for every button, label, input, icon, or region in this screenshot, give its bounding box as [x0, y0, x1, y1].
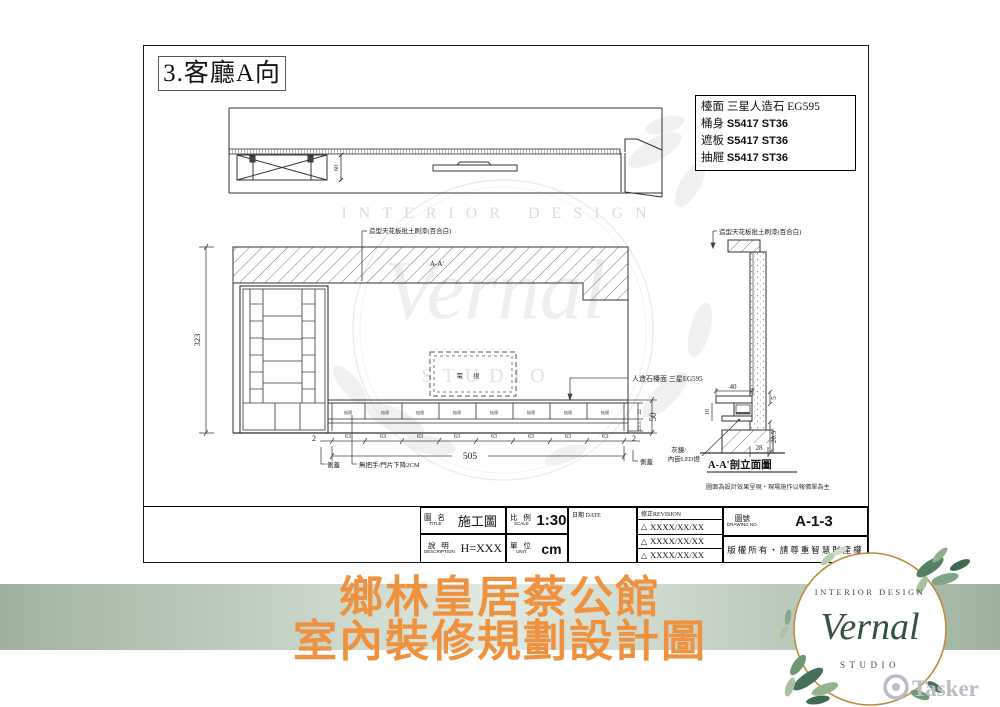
revision-row: △XXXX/XX/XX — [638, 534, 722, 548]
material-label: 遮板 — [701, 135, 724, 147]
side-cover-right-label: 側蓋 — [640, 457, 654, 466]
mirror-note-dot — [738, 419, 741, 422]
materials-box: 檯面 三星人造石 EG595 桶身 S5417 ST36 遮板 S5417 ST… — [695, 95, 856, 171]
section-cut-label: A-A' — [430, 260, 444, 268]
material-value: S5417 ST36 — [727, 152, 788, 164]
tasker-wordmark: Tasker — [912, 676, 979, 701]
segment-dim: 63 — [417, 434, 423, 440]
revision-triangle-icon: △ — [641, 537, 647, 546]
tb-drawingno-value: A-1-3 — [761, 513, 867, 530]
bottom-label-leaders — [321, 415, 638, 464]
page-canvas: INTERIOR DESIGN Vernal STUDIO — [0, 0, 1000, 707]
plan-view — [229, 108, 662, 197]
segment-dim-lines — [320, 438, 640, 444]
tb-date-cell: 日期 DATE — [568, 507, 637, 563]
material-label: 檯面 — [701, 101, 724, 113]
drawer-labels: 抽屜 抽屜 抽屜 抽屜 抽屜 抽屜 抽屜 抽屜 — [344, 409, 609, 416]
view-title-box: 3.客廳A向 — [158, 56, 286, 91]
material-row: 桶身 S5417 ST36 — [701, 116, 850, 133]
elevation-ceiling — [233, 247, 628, 433]
handle-note: 無把手/門片下降2CM — [359, 460, 420, 469]
mirror-note-line2: 內嵌LED燈 — [668, 454, 701, 463]
view-title: 3.客廳A向 — [163, 60, 281, 87]
side-dim-right: 2 — [632, 434, 636, 443]
row-bottom-dim: 23.5 — [637, 421, 643, 431]
tb-revision-cell: 修正REVISION △XXXX/XX/XX △XXXX/XX/XX △XXXX… — [637, 507, 723, 563]
revision-row: △XXXX/XX/XX — [638, 519, 722, 533]
material-value: S5417 ST36 — [727, 118, 788, 130]
tb-unit-label-en: UNIT — [516, 550, 527, 555]
material-row: 遮板 S5417 ST36 — [701, 133, 850, 150]
section-ceiling-note-leader — [711, 231, 717, 248]
segment-dim: 63 — [345, 434, 351, 440]
section-dim-5: 5 — [770, 396, 778, 400]
tb-date-label: 日期 DATE — [569, 508, 601, 519]
low-cabinet — [233, 400, 652, 433]
ceiling-note-right: 造型天花板批土刷漆(百合白) — [719, 227, 801, 236]
revision-row: △XXXX/XX/XX — [638, 548, 722, 562]
material-value: 三星人造石 EG595 — [727, 101, 820, 113]
logo-top-text: INTERIOR DESIGN — [815, 587, 925, 597]
tasker-brand: Tasker — [878, 668, 998, 706]
drawer-label: 抽屜 — [416, 409, 424, 416]
tb-title-cell: 圖 名TITLE 施工圖 — [420, 507, 506, 534]
material-value: S5417 ST36 — [727, 135, 788, 147]
section-title: A-A'剖立面圖 — [708, 458, 772, 471]
mirror-note-line1: 灰鏡/ — [671, 445, 686, 454]
tb-desc-label-en: DESCRIPTION — [424, 550, 455, 555]
material-row: 檯面 三星人造石 EG595 — [701, 99, 850, 116]
tb-scale-label-en: SCALE — [514, 522, 529, 527]
tb-title-value: 施工圖 — [450, 511, 505, 530]
tb-revision-label: 修正REVISION — [638, 508, 722, 519]
ceiling-note-left: 造型天花板批土刷漆(百合白) — [369, 226, 451, 235]
section-dim-205: 20.5 — [770, 430, 778, 443]
tb-desc-value: H=XXX — [458, 541, 505, 556]
shelving-unit — [240, 286, 328, 433]
height-dim: 323 — [192, 334, 202, 347]
cabinet-height-dim: 50 — [648, 412, 658, 422]
tv-label: 電視 — [457, 371, 490, 380]
total-width-dim: 505 — [463, 452, 478, 462]
title-block: 圖 名TITLE 施工圖 說 明DESCRIPTION H=XXX 比 例SCA… — [143, 506, 868, 563]
revision-date: XXXX/XX/XX — [650, 550, 704, 560]
tb-scale-cell: 比 例SCALE 1:30 — [506, 507, 568, 534]
revision-date: XXXX/XX/XX — [650, 536, 704, 546]
disclaimer: 圖面為設計效果呈現‧現場施作以報價單為主 — [706, 483, 830, 491]
tb-drawingno-label-en: DRAWING NO. — [727, 523, 758, 528]
section-dim-40: 40 — [730, 383, 738, 391]
counter-note-leader — [568, 378, 628, 400]
tb-unit-cell: 單 位UNIT cm — [506, 534, 568, 563]
drawer-label: 抽屜 — [453, 409, 461, 416]
drawer-label: 抽屜 — [381, 409, 389, 416]
revision-date: XXXX/XX/XX — [650, 522, 704, 532]
revision-triangle-icon: △ — [641, 551, 647, 560]
side-cover-left-label: 側蓋 — [327, 460, 341, 469]
tb-unit-value: cm — [536, 541, 567, 557]
segment-dim: 63 — [528, 434, 534, 440]
logo-name-text: Vernal — [820, 606, 919, 648]
section-structure — [700, 240, 785, 453]
total-width-dim-lines — [330, 446, 626, 461]
drawer-label: 抽屜 — [490, 409, 498, 416]
counter-note: 人造石檯面 三星EG595 — [632, 374, 703, 383]
tasker-icon-dot — [892, 683, 900, 691]
segment-dims: 63 63 63 63 63 63 63 63 — [345, 434, 608, 440]
segment-dim: 63 — [491, 434, 497, 440]
tb-scale-value: 1:30 — [536, 512, 567, 529]
row-top-dim: 22 — [637, 409, 643, 415]
segment-dim: 63 — [380, 434, 386, 440]
segment-dim: 63 — [602, 434, 608, 440]
drawer-label: 抽屜 — [564, 409, 572, 416]
tb-drawingno-cell: 圖號DRAWING NO. A-1-3 — [723, 507, 868, 536]
plan-depth-dim: 60 — [334, 165, 340, 171]
drawer-label: 抽屜 — [527, 409, 535, 416]
material-label: 抽屜 — [701, 152, 724, 164]
tb-desc-cell: 說 明DESCRIPTION H=XXX — [420, 534, 506, 563]
drawer-label: 抽屜 — [601, 409, 609, 416]
section-dim-10: 10 — [705, 409, 711, 415]
segment-dim: 63 — [454, 434, 460, 440]
tb-title-label-en: TITLE — [429, 522, 441, 527]
segment-dim: 63 — [565, 434, 571, 440]
side-dim-left: 2 — [312, 434, 316, 443]
revision-triangle-icon: △ — [641, 522, 647, 531]
drawer-label: 抽屜 — [344, 409, 352, 416]
material-row: 抽屜 S5417 ST36 — [701, 150, 850, 167]
material-label: 桶身 — [701, 118, 724, 130]
section-dim-28: 28 — [756, 444, 764, 452]
